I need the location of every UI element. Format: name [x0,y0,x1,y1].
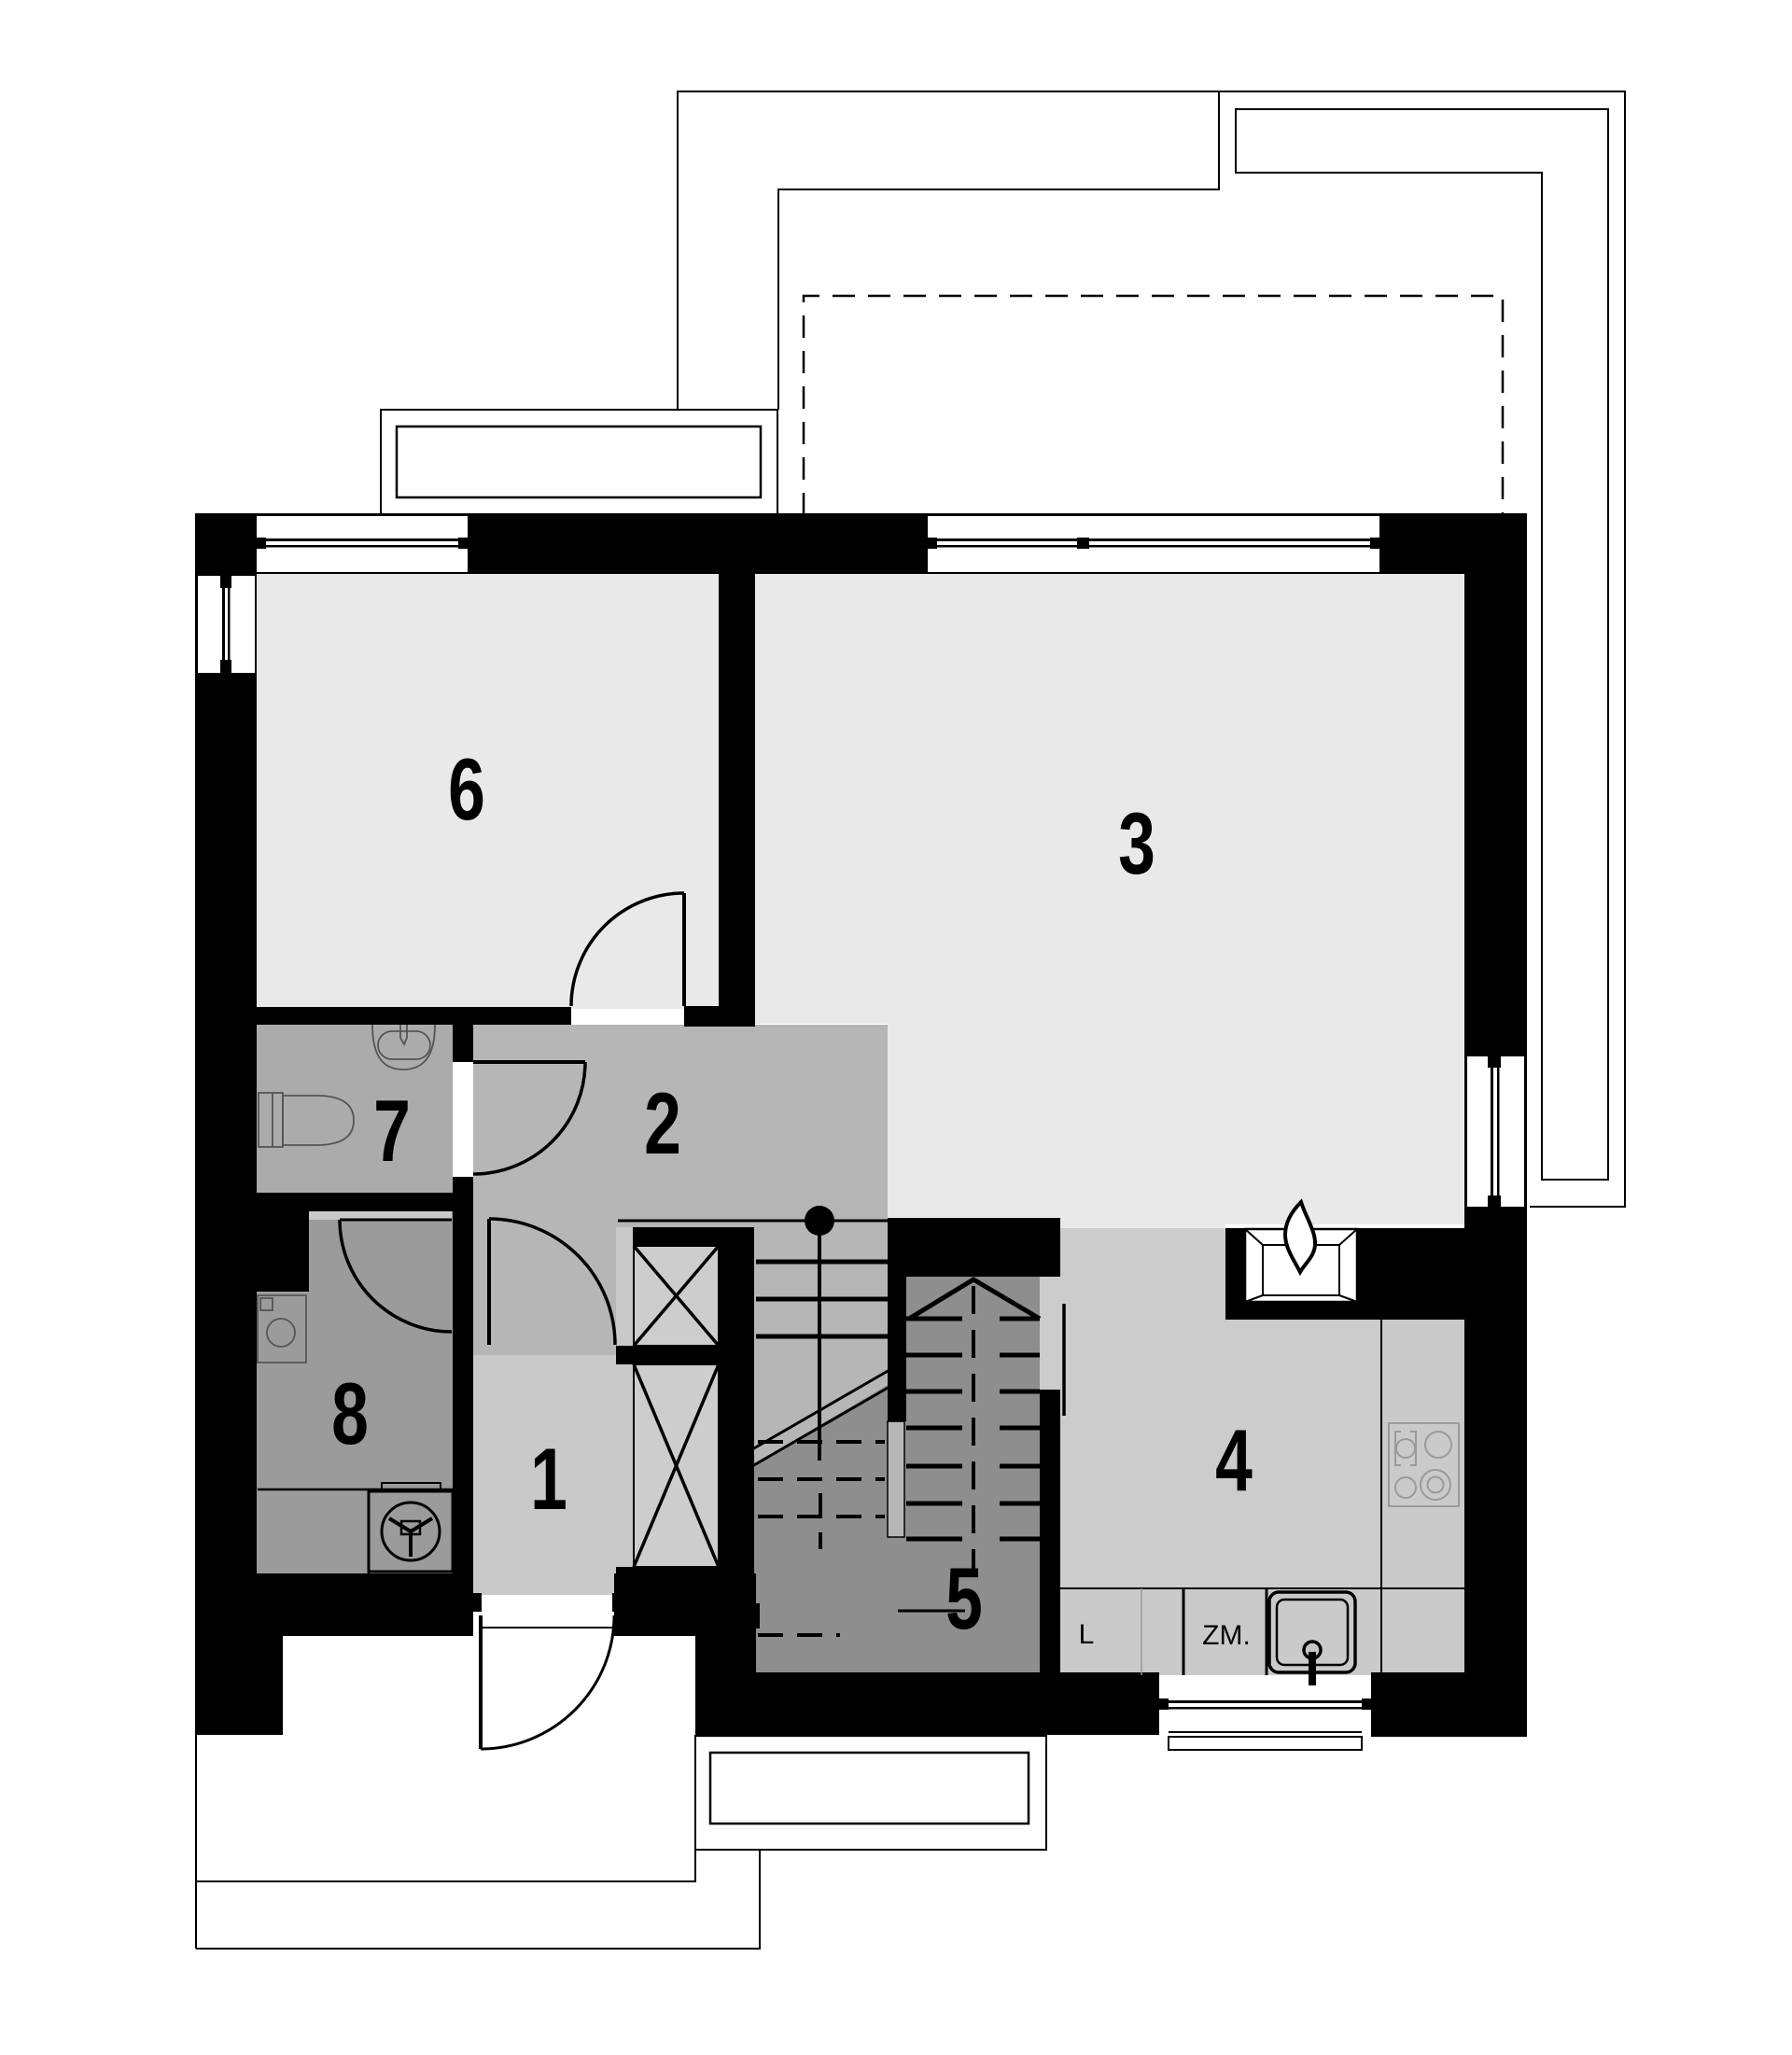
svg-text:8: 8 [331,1363,369,1462]
svg-text:3: 3 [1118,793,1155,892]
svg-text:L: L [1079,1619,1095,1650]
svg-text:6: 6 [448,739,485,838]
svg-text:2: 2 [644,1073,681,1172]
svg-text:4: 4 [1215,1410,1253,1509]
svg-text:7: 7 [373,1081,411,1180]
svg-text:1: 1 [530,1429,567,1528]
svg-text:ZM.: ZM. [1202,1620,1251,1651]
svg-text:5: 5 [945,1548,983,1647]
